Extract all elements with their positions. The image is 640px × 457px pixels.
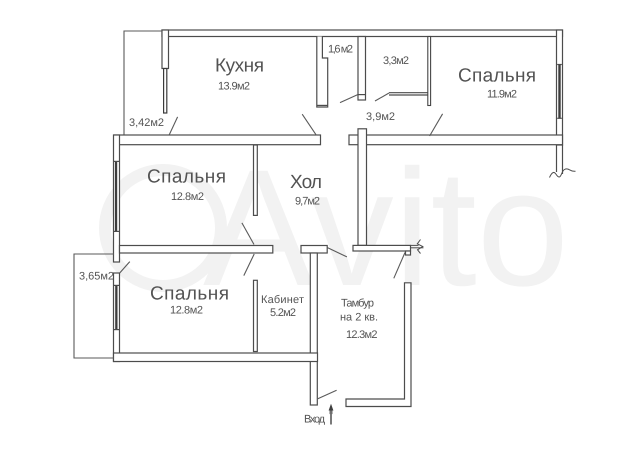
svg-text:13.9м2: 13.9м2 bbox=[218, 81, 250, 93]
svg-text:Хол: Хол bbox=[290, 172, 322, 193]
svg-text:Тамбур: Тамбур bbox=[341, 298, 374, 310]
svg-text:Спальня: Спальня bbox=[458, 66, 536, 87]
svg-text:12.8м2: 12.8м2 bbox=[171, 191, 204, 203]
svg-text:3,3м2: 3,3м2 bbox=[383, 55, 409, 67]
svg-text:Avito: Avito bbox=[203, 136, 569, 321]
svg-text:3,9м2: 3,9м2 bbox=[366, 111, 395, 123]
svg-text:Спальня: Спальня bbox=[150, 284, 229, 305]
svg-text:9,7м2: 9,7м2 bbox=[295, 196, 320, 208]
svg-text:на 2 кв.: на 2 кв. bbox=[340, 312, 378, 324]
svg-text:3,42м2: 3,42м2 bbox=[129, 117, 164, 129]
svg-text:12.3м2: 12.3м2 bbox=[346, 329, 378, 341]
svg-text:Кабинет: Кабинет bbox=[261, 294, 304, 306]
svg-text:Спальня: Спальня bbox=[147, 166, 226, 187]
svg-text:12.8м2: 12.8м2 bbox=[170, 305, 203, 317]
svg-text:3,65м2: 3,65м2 bbox=[79, 271, 114, 283]
svg-text:1,6 м2: 1,6 м2 bbox=[328, 44, 353, 56]
svg-text:11.9м2: 11.9м2 bbox=[487, 88, 517, 100]
svg-text:5.2м2: 5.2м2 bbox=[270, 307, 296, 319]
svg-text:Кухня: Кухня bbox=[215, 56, 264, 77]
svg-text:Вход: Вход bbox=[304, 414, 326, 426]
